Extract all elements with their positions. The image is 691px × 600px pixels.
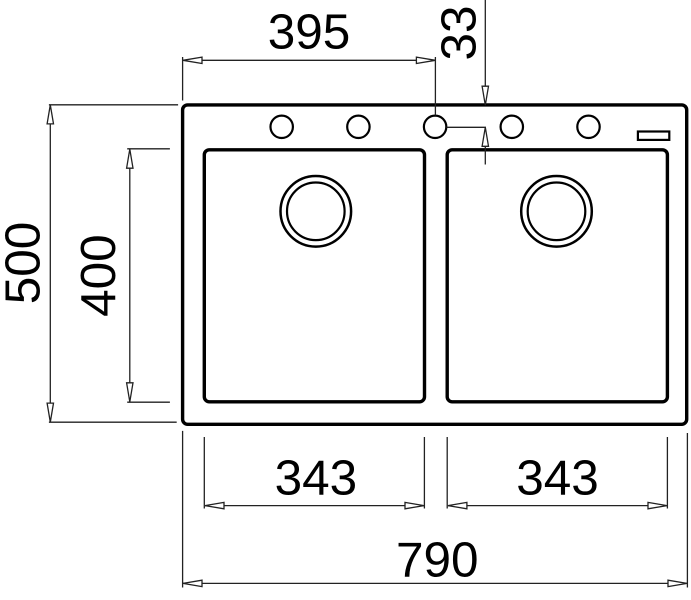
svg-text:33: 33 [432,5,487,60]
svg-text:790: 790 [396,533,479,588]
svg-text:395: 395 [268,5,351,60]
svg-text:343: 343 [516,451,599,506]
svg-text:343: 343 [275,451,358,506]
svg-text:500: 500 [0,222,51,305]
svg-text:400: 400 [71,234,126,317]
